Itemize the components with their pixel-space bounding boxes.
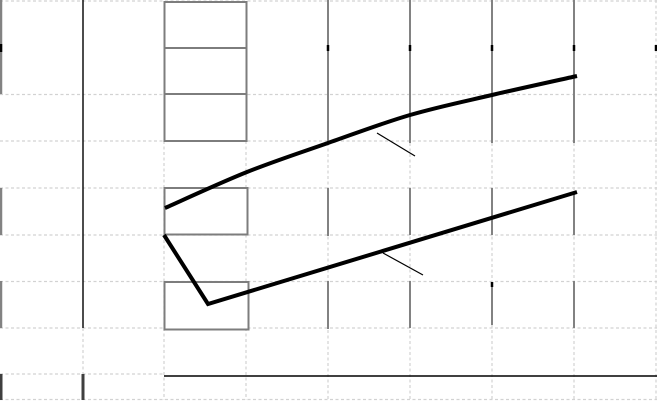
empty-label-box	[165, 188, 248, 235]
empty-label-box	[165, 48, 247, 94]
chart-figure	[0, 0, 657, 401]
empty-label-box	[165, 94, 247, 141]
empty-label-box	[165, 282, 249, 330]
empty-label-box	[165, 2, 247, 48]
chart-canvas	[0, 0, 657, 401]
